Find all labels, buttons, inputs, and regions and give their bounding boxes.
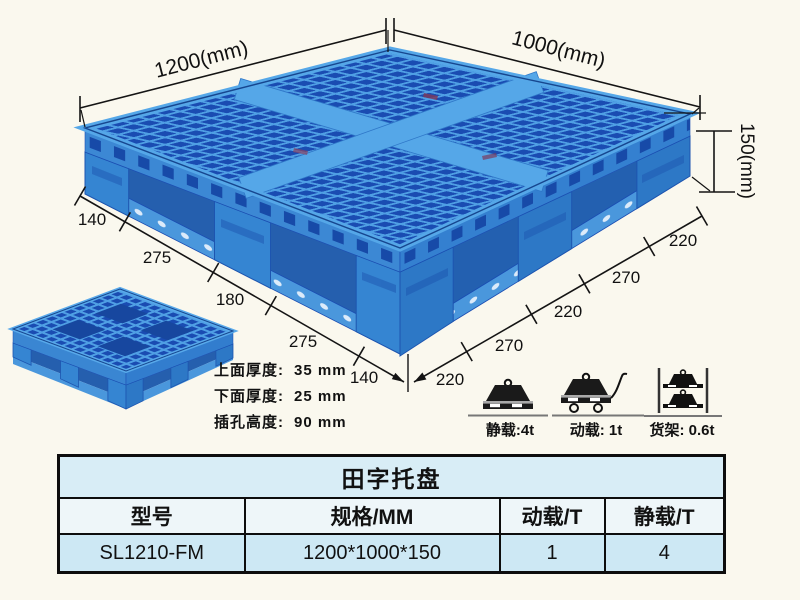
dim-label-bl-3: 275 — [289, 332, 317, 351]
note-label: 上面厚度: — [214, 362, 284, 379]
note-value: 90 mm — [294, 414, 347, 431]
note-top-thickness: 上面厚度:35 mm — [214, 358, 347, 384]
cell-model: SL1210-FM — [59, 534, 245, 573]
note-bottom-thickness: 下面厚度:25 mm — [214, 384, 347, 410]
dim-label-height: 150(mm) — [736, 123, 757, 199]
table-row: SL1210-FM 1200*1000*150 1 4 — [59, 534, 725, 573]
pallet-small-view — [13, 289, 233, 409]
table-title: 田字托盘 — [59, 456, 725, 499]
rack-load-icon — [644, 366, 722, 418]
spec-table: 田字托盘 型号 规格/MM 动载/T 静载/T SL1210-FM 1200*1… — [57, 454, 726, 574]
col-header-size: 规格/MM — [245, 498, 500, 534]
dynamic-load-label: 动载: 1t — [550, 419, 642, 440]
col-header-model: 型号 — [59, 498, 245, 534]
static-load-icon — [468, 377, 548, 419]
table-title-row: 田字托盘 — [59, 456, 725, 499]
note-value: 25 mm — [294, 388, 347, 405]
cell-static-load: 4 — [605, 534, 725, 573]
note-slot-height: 插孔高度:90 mm — [214, 410, 347, 436]
cell-dynamic-load: 1 — [500, 534, 605, 573]
dim-label-length: 1200(mm) — [152, 36, 250, 82]
col-header-static-load: 静载/T — [605, 498, 725, 534]
note-label: 下面厚度: — [214, 388, 284, 405]
dim-label-bl-0: 140 — [78, 210, 106, 229]
note-value: 35 mm — [294, 362, 347, 379]
note-label: 插孔高度: — [214, 414, 284, 431]
dim-label-br-1: 270 — [495, 336, 523, 355]
dim-label-width: 1000(mm) — [509, 26, 607, 72]
spec-table-container: 田字托盘 型号 规格/MM 动载/T 静载/T SL1210-FM 1200*1… — [57, 454, 726, 574]
dim-label-bl-1: 275 — [143, 248, 171, 267]
dim-label-br-0: 220 — [436, 370, 464, 389]
table-header-row: 型号 规格/MM 动载/T 静载/T — [59, 498, 725, 534]
cell-size: 1200*1000*150 — [245, 534, 500, 573]
dim-label-br-2: 220 — [554, 302, 582, 321]
col-header-dynamic-load: 动载/T — [500, 498, 605, 534]
dim-label-br-3: 270 — [612, 268, 640, 287]
static-load-label: 静载:4t — [470, 419, 550, 440]
thickness-notes: 上面厚度:35 mm 下面厚度:25 mm 插孔高度:90 mm — [214, 358, 347, 436]
dim-label-br-4: 220 — [669, 231, 697, 250]
dim-label-bl-2: 180 — [216, 290, 244, 309]
dim-label-bl-4: 140 — [350, 368, 378, 387]
rack-load-label: 货架: 0.6t — [636, 419, 728, 440]
dynamic-load-icon — [552, 371, 644, 419]
